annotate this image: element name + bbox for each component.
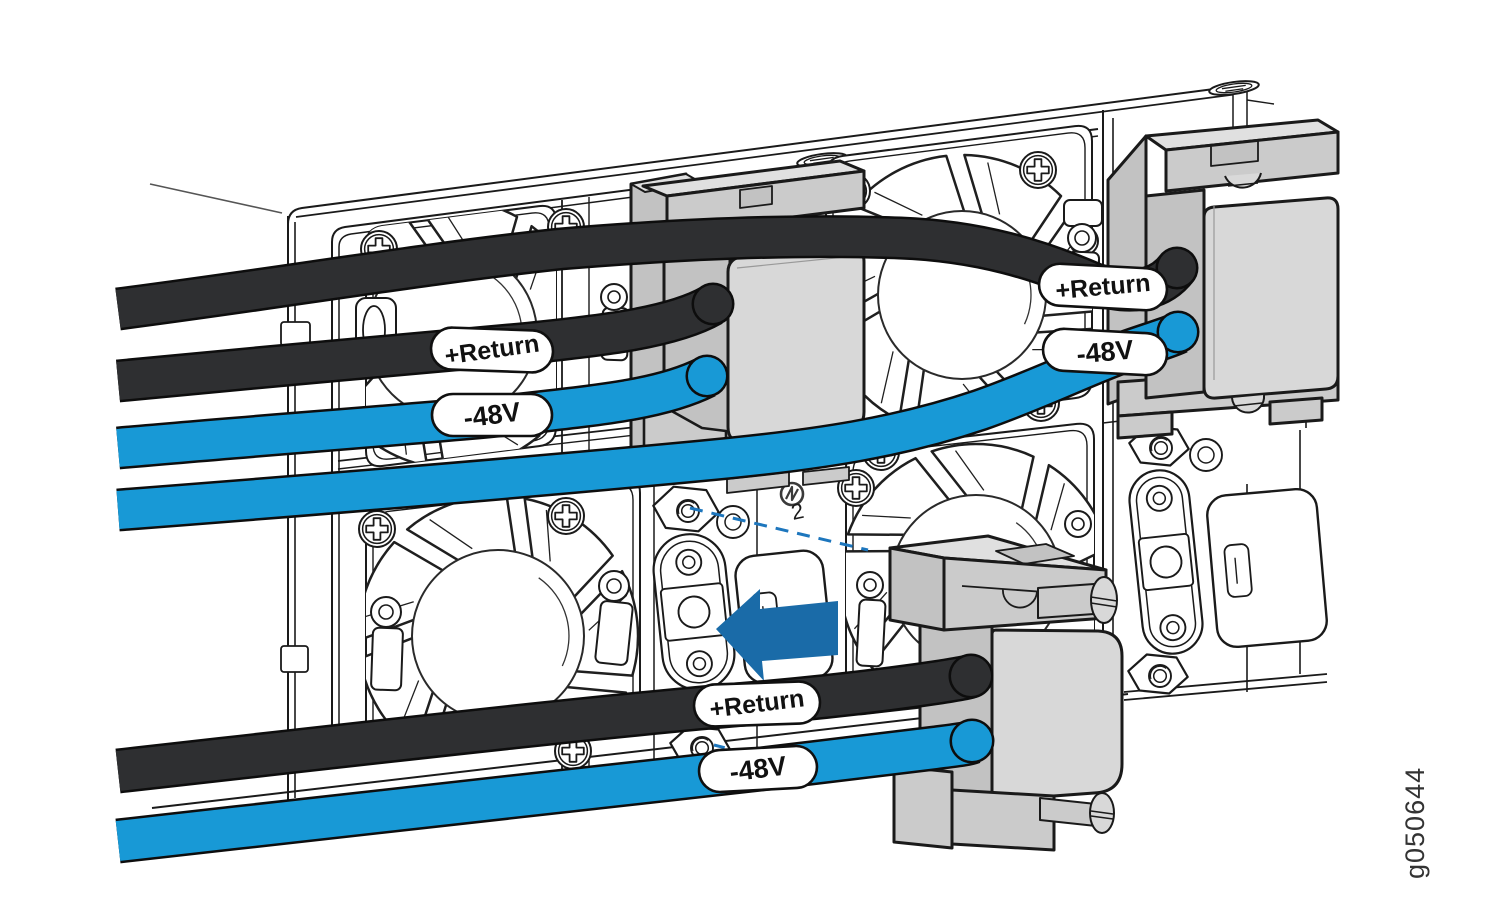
svg-text:-48V: -48V [1075,335,1134,370]
svg-text:g050644: g050644 [1400,767,1430,879]
